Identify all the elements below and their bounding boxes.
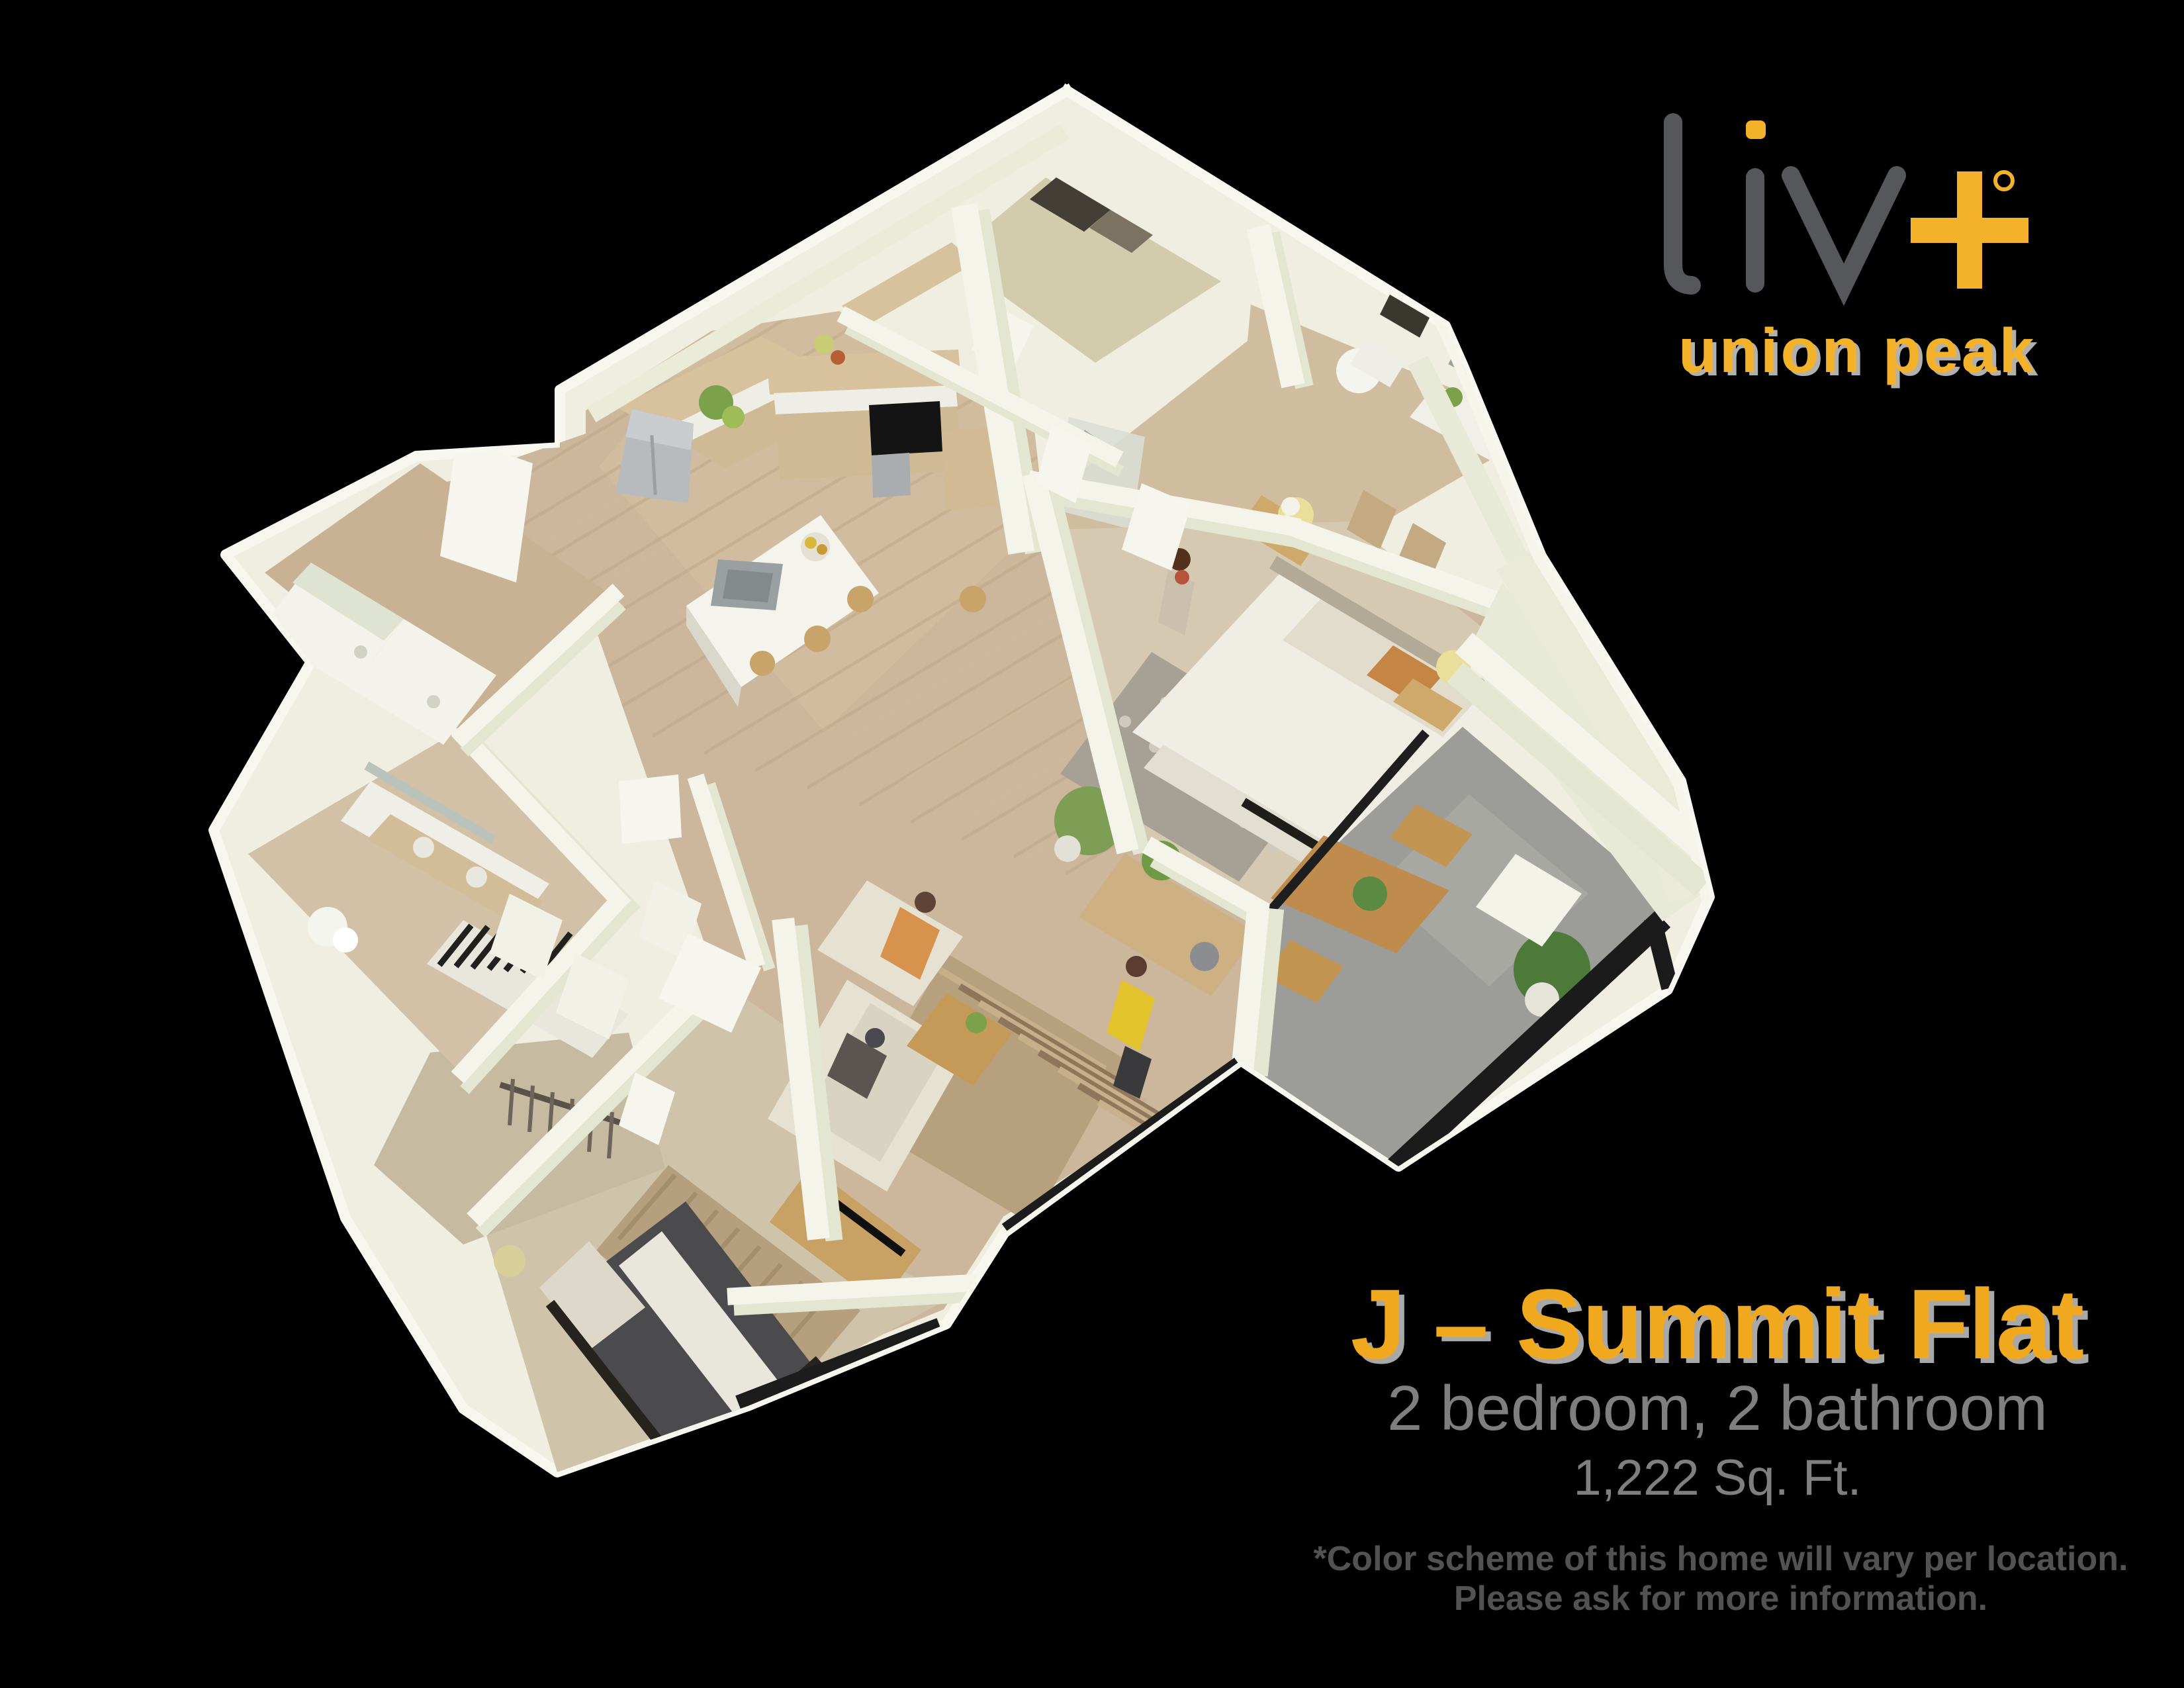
svg-text:2 bedroom, 2 bathroom: 2 bedroom, 2 bathroom (1387, 1373, 2048, 1444)
svg-text:union peak: union peak (1678, 316, 2036, 386)
svg-text:Please ask for more informatio: Please ask for more information. (1454, 1579, 1987, 1618)
svg-text:J – Summit Flat: J – Summit Flat (1351, 1268, 2085, 1380)
svg-text:*Color scheme of this home wil: *Color scheme of this home will vary per… (1314, 1540, 2128, 1578)
svg-text:1,222 Sq. Ft.: 1,222 Sq. Ft. (1573, 1450, 1861, 1506)
